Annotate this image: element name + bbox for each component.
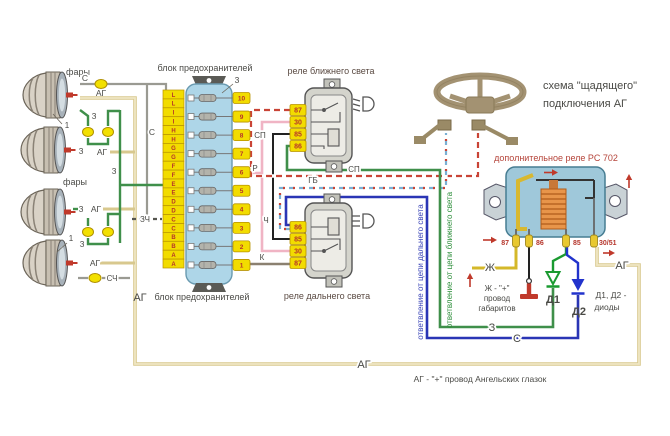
fuse-letter: E (171, 191, 175, 197)
wire-label-z-branch: З (489, 322, 496, 334)
ag-bottom-note: АГ - "+" провод Ангельских глазок (414, 374, 547, 384)
relay-low-terminals: 87308586 (290, 105, 306, 152)
fuse-number: 10 (238, 95, 246, 102)
wire-label-ag-big: АГ (133, 292, 146, 304)
fuse-contact (188, 95, 194, 101)
relay-terminal-label: 85 (294, 132, 302, 139)
wire-label-r: Р (252, 164, 257, 173)
fuse-letter: A (171, 262, 176, 268)
wire-label-z: З (79, 147, 84, 156)
headlight-4 (23, 240, 78, 286)
wire-label-k: К (260, 253, 265, 262)
wire-s (80, 84, 166, 90)
fuse-element (199, 169, 216, 176)
relay-high-caption: реле дальнего света (284, 291, 370, 301)
aux-relay-pin (526, 235, 533, 247)
fuse-element (199, 243, 216, 250)
wire-label-s: С (82, 73, 88, 83)
headlights-caption-lower: фары (63, 177, 87, 187)
zh-note-1: Ж - "+" (485, 284, 510, 293)
connector (83, 128, 94, 137)
fuse-number: 8 (240, 133, 244, 140)
relay-high-terminals: 86853087 (290, 222, 306, 269)
fuse-contact (188, 151, 194, 157)
aux-relay-pin (591, 235, 598, 247)
wire-d1-top (553, 247, 566, 272)
wire-label-z: З (92, 112, 97, 121)
mount-hole-icon (331, 164, 337, 170)
fuse-number: 6 (240, 170, 244, 177)
fuse-contact (188, 206, 194, 212)
wire-label-gb: ГБ (308, 176, 318, 185)
wire-label-sp: СП (348, 165, 360, 174)
fuse-number: 2 (240, 244, 244, 251)
branch-low-beam-note: ответвление от цепи ближнего света (445, 191, 454, 328)
fuse-contact (188, 114, 194, 120)
relay-aux-caption: дополнительное реле РС 702 (494, 153, 618, 163)
mount-hole-icon (490, 197, 501, 208)
wire-label-ag: АГ (90, 258, 101, 268)
fuse-contact (188, 225, 194, 231)
fuse-element (199, 113, 216, 120)
stalk-base-right (472, 120, 485, 130)
aux-relay-pin (563, 235, 570, 247)
diode-d2 (572, 279, 585, 294)
wire-d2-top (567, 247, 578, 279)
fuse-letter: G (171, 146, 176, 152)
fuse-number: 4 (240, 207, 244, 214)
stalk-knob-left (414, 136, 426, 144)
connector (83, 228, 94, 237)
wire-label-sp: СП (254, 131, 266, 140)
low-beam-icon (353, 97, 374, 111)
steering-wheel (414, 76, 523, 145)
mount-hole-icon (207, 78, 212, 83)
connector (89, 274, 101, 283)
fuse-letter: H (171, 128, 175, 134)
wiring-diagram: LLIIHHGGFFEEDDCCBBAA 10987654321 8730858… (0, 0, 670, 436)
wire-label-z: З (112, 167, 117, 176)
fuse-block: LLIIHHGGFFEEDDCCBBAA 10987654321 (163, 76, 250, 292)
branch-high-beam-note: ответвление от цепи дальнего света (416, 204, 425, 340)
relay-high-beam: 86853087 (290, 194, 374, 287)
diode-note-1: Д1, Д2 - (596, 290, 627, 300)
fuse-letter: B (171, 235, 176, 241)
mount-hole-icon (610, 196, 621, 207)
diode-d2-label: Д2 (572, 306, 586, 318)
fuse-contact (188, 262, 194, 268)
coil-windings (541, 194, 566, 224)
fuse-block-caption-top: блок предохранителей (158, 63, 253, 73)
fuse-number: 9 (240, 114, 244, 121)
stalk-right (483, 126, 510, 140)
wire-label-z: З (80, 240, 85, 249)
mount-hole-icon (329, 197, 335, 203)
aux-relay-pin-label: 30/51 (599, 240, 617, 247)
aux-relay-pin-label: 86 (536, 240, 544, 247)
fuse-letter: H (171, 137, 175, 143)
headlight-3 (21, 189, 76, 235)
fuse-element (199, 206, 216, 213)
headlight-callout: 1 (69, 234, 74, 243)
wire-label-zch: ЗЧ (140, 215, 150, 224)
fuse-letter: C (171, 217, 176, 223)
mount-hole-icon (331, 279, 337, 285)
ground-symbol (520, 279, 538, 299)
wire-z-h2 (80, 110, 120, 144)
zh-note-2: провод (484, 294, 511, 303)
relay-terminal-label: 87 (294, 108, 302, 115)
relay-face (311, 95, 346, 156)
fuse-letter: D (171, 209, 176, 215)
fuse-letter: A (171, 253, 176, 259)
aux-relay-pin-label: 87 (501, 240, 509, 247)
fuse-letter: D (171, 200, 176, 206)
fuse-contact (188, 169, 194, 175)
fuse-element (199, 224, 216, 231)
relay-terminal-label: 87 (294, 261, 302, 268)
headlight-callout: 1 (65, 121, 70, 130)
fuse-element (199, 95, 216, 102)
relay-terminal-label: 86 (294, 144, 302, 151)
relay-terminal-label: 86 (294, 225, 302, 232)
fuse-element (199, 132, 216, 139)
fuse-contact (188, 188, 194, 194)
headlight-2 (21, 127, 76, 173)
wire-label-ag: АГ (91, 204, 102, 214)
fuse-block-callout: 3 (235, 75, 240, 85)
wire-label-s: С (149, 127, 155, 137)
diode-note-2: диоды (594, 302, 619, 312)
fuse-number: 1 (240, 262, 244, 269)
aux-relay-pin-label: 85 (573, 240, 581, 247)
headlight-1 (23, 72, 78, 118)
fuse-element (199, 150, 216, 157)
coil-core (549, 180, 558, 189)
fuse-letter: C (171, 226, 176, 232)
diode-d1 (547, 272, 560, 287)
connector (103, 128, 114, 137)
wire-label-s-branch: С (513, 333, 521, 345)
fuse-letter: F (172, 164, 176, 170)
wire-label-ch: Ч (263, 216, 268, 225)
relay-low-caption: реле ближнего света (288, 66, 375, 76)
fuse-number: 5 (240, 188, 244, 195)
diode-d1-label: Д1 (546, 294, 560, 306)
relay-terminal-label: 85 (294, 237, 302, 244)
fuse-contact (188, 132, 194, 138)
relay-low-beam: 87308586 (290, 79, 374, 172)
steering-hub (466, 97, 494, 113)
wire-label-ag-bottom: АГ (357, 359, 370, 371)
fuse-letter: B (171, 244, 176, 250)
wire-label-ag-right: АГ (615, 260, 628, 272)
title-line2: подключения АГ (543, 98, 627, 110)
fuse-letter: L (172, 93, 176, 99)
fuse-element (199, 261, 216, 268)
high-beam-icon (352, 214, 374, 228)
relay-terminal-label: 30 (294, 120, 302, 127)
fuse-letter-strip: LLIIHHGGFFEEDDCCBBAA (163, 90, 184, 268)
fuse-element (199, 187, 216, 194)
wire-label-z: З (79, 205, 84, 214)
fuse-letter: F (172, 173, 176, 179)
fuse-number: 7 (240, 151, 244, 158)
wire-label-sch: СЧ (107, 274, 118, 283)
title-line1: схема "щадящего" (543, 80, 637, 92)
mount-hole-icon (207, 285, 212, 290)
stalk-knob-right (506, 137, 518, 145)
wire-label-ag: АГ (96, 88, 107, 98)
aux-relay-pin (513, 235, 520, 247)
fuse-letter: L (172, 102, 176, 108)
wire-label-zh: Ж (485, 262, 495, 274)
relay-terminal-label: 30 (294, 249, 302, 256)
fuse-block-caption-bottom: блок предохранителей (155, 292, 250, 302)
connector (103, 228, 114, 237)
fuse-letter: G (171, 155, 176, 161)
fuse-number: 3 (240, 225, 244, 232)
fuse-letter: E (171, 182, 175, 188)
wire-label-ag: АГ (97, 147, 108, 157)
fuse-contact (188, 243, 194, 249)
mount-hole-icon (329, 82, 335, 88)
zh-note-3: габаритов (478, 304, 515, 313)
